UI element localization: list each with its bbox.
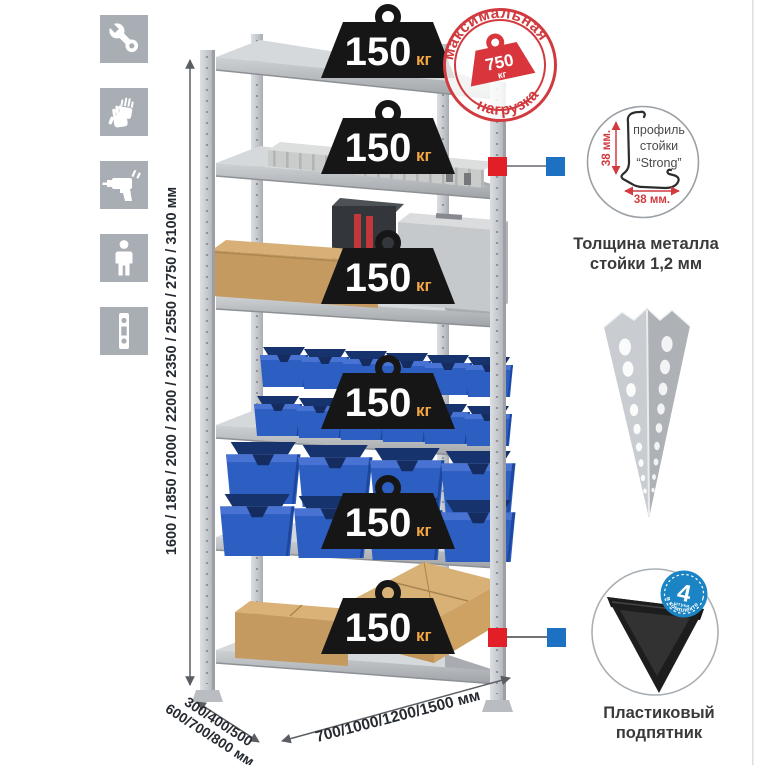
height-dimension-label: 1600 / 1850 / 2000 / 2200 / 2350 / 2550 …	[164, 51, 180, 691]
profile-label-3: “Strong”	[636, 156, 681, 170]
red-marker-square	[488, 157, 507, 176]
load-value: 150	[345, 256, 412, 300]
load-value: 150	[345, 30, 412, 74]
load-value: 150	[345, 381, 412, 425]
load-unit: кг	[416, 626, 432, 645]
profile-caption: Толщина металла стойки 1,2 мм	[566, 234, 726, 274]
weight-badge-1: 150 кг	[321, 8, 455, 79]
plastic-foot-detail: 4 штуки в комплекте	[592, 566, 718, 695]
load-unit: кг	[416, 50, 432, 69]
corner-post-image	[604, 308, 690, 518]
load-unit: кг	[416, 276, 432, 295]
gloves-icon	[100, 88, 148, 136]
foot-caption-line1: Пластиковый	[579, 703, 739, 723]
load-unit: кг	[416, 401, 432, 420]
page-edge-line	[752, 0, 754, 765]
person-icon	[100, 234, 148, 282]
load-value: 150	[345, 126, 412, 170]
foot-connector	[488, 628, 566, 647]
profile-connector	[488, 157, 565, 176]
profile-label-1: профиль	[633, 123, 685, 137]
blue-marker-square	[546, 157, 565, 176]
profile-horizontal-dim: 38 мм.	[634, 194, 670, 206]
profile-vertical-dim: 38 мм.	[601, 130, 613, 166]
load-value: 150	[345, 501, 412, 545]
red-marker-square	[488, 628, 507, 647]
load-unit: кг	[416, 146, 432, 165]
load-value: 150	[345, 606, 412, 650]
foot-caption: Пластиковый подпятник	[579, 703, 739, 743]
load-unit: кг	[416, 521, 432, 540]
rack-post-icon	[100, 307, 148, 355]
profile-label-2: стойки	[640, 139, 678, 153]
foot-caption-line2: подпятник	[579, 723, 739, 743]
blue-marker-square	[547, 628, 566, 647]
profile-caption-line1: Толщина металла	[566, 234, 726, 254]
weight-badge-2: 150 кг	[321, 104, 455, 175]
wrench-icon	[100, 15, 148, 63]
product-infographic: 150 кг 150 кг 150 кг 150 кг 150 кг	[0, 0, 765, 765]
profile-detail-diagram: 38 мм. 38 мм. профиль стойки “Strong”	[588, 107, 699, 218]
max-load-stamp: максимальная нагрузка 750 кг	[432, 0, 568, 131]
profile-caption-line2: стойки 1,2 мм	[566, 254, 726, 274]
drill-icon	[100, 161, 148, 209]
